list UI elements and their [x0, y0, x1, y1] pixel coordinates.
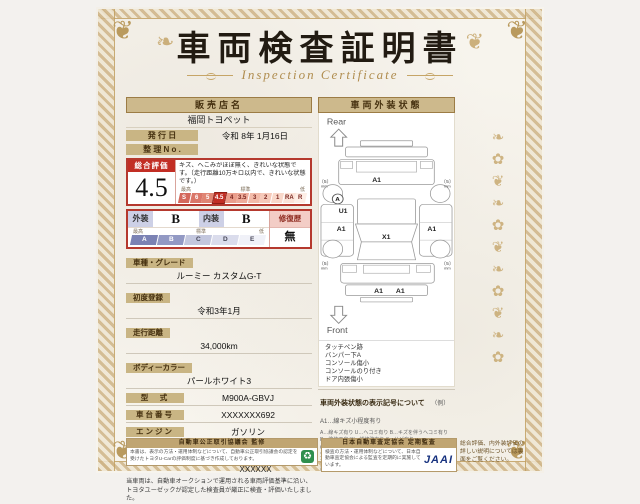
detail-row-model-code: 型 式 M900A-GBVJ: [126, 391, 312, 406]
detail-row-first-registration: 初度登録 令和3年1月: [126, 287, 312, 319]
front-label: Front: [327, 326, 348, 335]
detail-value: 令和3年1月: [126, 305, 312, 319]
grade-cell: C: [184, 235, 212, 245]
inspection-certificate: ❦ ❦ ❦ ❦ ❧✿❦❧✿❦❧✿❦❧✿ 車両検査証明書 ❧ ❦ Inspecti…: [96, 7, 544, 473]
subtitle-rule: [187, 75, 233, 76]
car-diagram: Rear A1 〔5〕 mm 〔5〕 mm: [319, 113, 454, 335]
repair-history-label: 修復歴: [270, 211, 310, 228]
ref-no-row: 整 理 N o .: [126, 143, 312, 156]
repair-history-value: 無: [270, 228, 310, 247]
frame-top: [98, 9, 542, 19]
interior-grade: B: [224, 211, 270, 227]
rear-label: Rear: [327, 117, 346, 127]
jaai-text: 検査の方法・運用体制などについて、日本自動車査定協会による監査を定期的に実施して…: [325, 450, 421, 469]
overall-description: キズ、へこみがほぼ無く、きれいな状態です。（走行距離10万キロ以内で、きれいな状…: [179, 162, 307, 187]
overall-score: 4.5: [128, 172, 175, 204]
svg-text:mm: mm: [444, 184, 451, 188]
overall-label: 総合評価: [128, 160, 175, 172]
page-subtitle: Inspection Certificate: [241, 67, 398, 83]
exterior-diagram-panel: Rear A1 〔5〕 mm 〔5〕 mm: [318, 113, 455, 387]
detail-row-chassis-no: 車台番号 XXXXXXX692: [126, 408, 312, 423]
detail-value: M900A-GBVJ: [184, 393, 312, 403]
scale-cell: 1: [271, 193, 284, 203]
grade-cell: A: [130, 235, 158, 245]
detail-label: 型 式: [126, 393, 184, 403]
exterior-grade: B: [153, 211, 199, 227]
back-page-note: 総合評価、内外装評価の詳しい説明については裏面をご覧ください。: [460, 438, 526, 464]
detail-value: ルーミー カスタムG-T: [126, 270, 312, 284]
exterior-header: 車両外装状態: [318, 97, 455, 113]
mark-right-door: A1: [427, 226, 436, 233]
detail-label: ボディーカラー: [126, 363, 192, 373]
grade-values-row: 外装 B 内装 B: [128, 211, 269, 228]
svg-text:mm: mm: [444, 267, 451, 271]
detail-value: パールホワイト3: [126, 375, 312, 389]
mark-left-door: A1: [337, 226, 346, 233]
dealer-header: 販売店名: [126, 97, 312, 113]
dealer-name: 福岡トヨペット: [126, 113, 312, 128]
grade-cell: D: [211, 235, 239, 245]
side-ornament-icon: ❧✿❦❧✿❦❧✿❦❧✿: [480, 127, 516, 369]
exterior-label: 外装: [128, 211, 153, 227]
grade-scale-block: 最高 標準 低 A B C D E: [128, 228, 269, 247]
detail-label: 走行距離: [126, 328, 170, 338]
title-flourish-icon: ❧: [156, 29, 174, 55]
note-line: タッチペン跡: [325, 344, 454, 352]
svg-text:mm: mm: [321, 184, 328, 188]
detail-label: 初度登録: [126, 293, 170, 303]
disclaimer-text: 当車両は、自動車オークションで運用される車両評価基準に沿い、トヨタユーゼックが認…: [126, 478, 312, 504]
overall-score-block: 総合評価 4.5: [128, 160, 176, 204]
detail-label: エンジン: [126, 427, 184, 437]
legend-title: 車両外装状態の表示記号について: [320, 400, 425, 407]
subtitle-rule: [407, 75, 453, 76]
ref-no-label: 整 理 N o .: [126, 144, 198, 155]
mark-rear-gate: A1: [372, 177, 381, 184]
repair-history-block: 修復歴 無: [270, 211, 310, 247]
title-flourish-icon: ❦: [466, 29, 484, 55]
fair-trade-text: 本書は、表示の方法・運用体制などについて、自動車公正取引協議会の認定を受けたトヨ…: [130, 450, 298, 463]
scale-cell-selected: 4.5: [213, 193, 226, 203]
footer: 自動車公正取引協議会 監修 本書は、表示の方法・運用体制などについて、自動車公正…: [126, 438, 526, 472]
tread-depth: 〔5〕: [319, 179, 332, 184]
detail-label: 車台番号: [126, 410, 184, 420]
scale-cell: 3.5: [236, 193, 249, 203]
interior-label: 内装: [199, 211, 224, 227]
issue-date-row: 発 行 日 令和 8年 1月16日: [126, 129, 312, 142]
note-line: バンパー下A: [325, 352, 454, 360]
detail-value: XXXXXXX692: [184, 410, 312, 420]
detail-row-body-color: ボディーカラー パールホワイト3: [126, 357, 312, 389]
scale-cell: R: [294, 193, 307, 203]
overall-detail-block: キズ、へこみがほぼ無く、きれいな状態です。（走行距離10万キロ以内で、きれいな状…: [176, 160, 310, 204]
jaai-box: 日本自動車査定協会 定期監査 検査の方法・運用体制などについて、日本自動車査定協…: [321, 438, 457, 472]
subtitle-row: Inspection Certificate: [96, 67, 544, 83]
mark-left-quarter: U1: [339, 209, 348, 216]
tread-depth: 〔5〕: [319, 261, 332, 266]
detail-value: ガソリン: [184, 426, 312, 438]
issue-date-label: 発 行 日: [126, 130, 198, 141]
fair-trade-box: 自動車公正取引協議会 監修 本書は、表示の方法・運用体制などについて、自動車公正…: [126, 438, 318, 466]
detail-row-model: 車種・グレード ルーミー カスタムG-T: [126, 252, 312, 284]
svg-text:mm: mm: [321, 267, 328, 271]
note-line: コンソールのり付き: [325, 368, 454, 376]
mark-hood: X1: [382, 234, 391, 241]
overall-evaluation-box: 総合評価 4.5 キズ、へこみがほぼ無く、きれいな状態です。（走行距離10万キロ…: [126, 158, 312, 206]
grade-left-block: 外装 B 内装 B 最高 標準 低 A B C D: [128, 211, 270, 247]
tread-depth: 〔5〕: [441, 179, 454, 184]
exterior-condition-column: 車両外装状態 Rear A1 〔5〕 mm: [318, 97, 455, 476]
jaai-title: 日本自動車査定協会 定期監査: [322, 439, 456, 448]
scale-cell: S: [178, 193, 191, 203]
grade-scale: A B C D E: [131, 235, 266, 245]
jaai-logo: JAAI: [424, 454, 453, 466]
mark-front-bumper-right: A1: [396, 288, 405, 295]
grade-cell: E: [238, 235, 266, 245]
tread-depth: 〔5〕: [441, 261, 454, 266]
mark-front-bumper-left: A1: [374, 288, 383, 295]
note-line: コンソール傷小: [325, 360, 454, 368]
overall-scale: S 6 5 4.5 4 3.5 3 2 1 RA R: [179, 193, 307, 203]
detail-value: 34,000km: [126, 340, 312, 354]
fair-trade-title: 自動車公正取引協議会 監修: [127, 439, 317, 448]
issue-date-value: 令和 8年 1月16日: [198, 130, 312, 142]
note-line: ドア内張傷小: [325, 376, 454, 384]
front-arrow-icon: [331, 306, 347, 323]
detail-label: 車種・グレード: [126, 258, 193, 268]
grade-cell-selected: B: [157, 235, 185, 245]
detail-row-mileage: 走行距離 34,000km: [126, 322, 312, 354]
exterior-notes: タッチペン跡 バンパー下A コンソール傷小 コンソールのり付き ドア内張傷小: [319, 340, 454, 386]
rear-arrow-icon: [331, 129, 347, 146]
mark-wheel: A: [335, 196, 340, 203]
fair-trade-logo-icon: ♻: [301, 450, 314, 463]
grade-box: 外装 B 内装 B 最高 標準 低 A B C D: [126, 209, 312, 249]
